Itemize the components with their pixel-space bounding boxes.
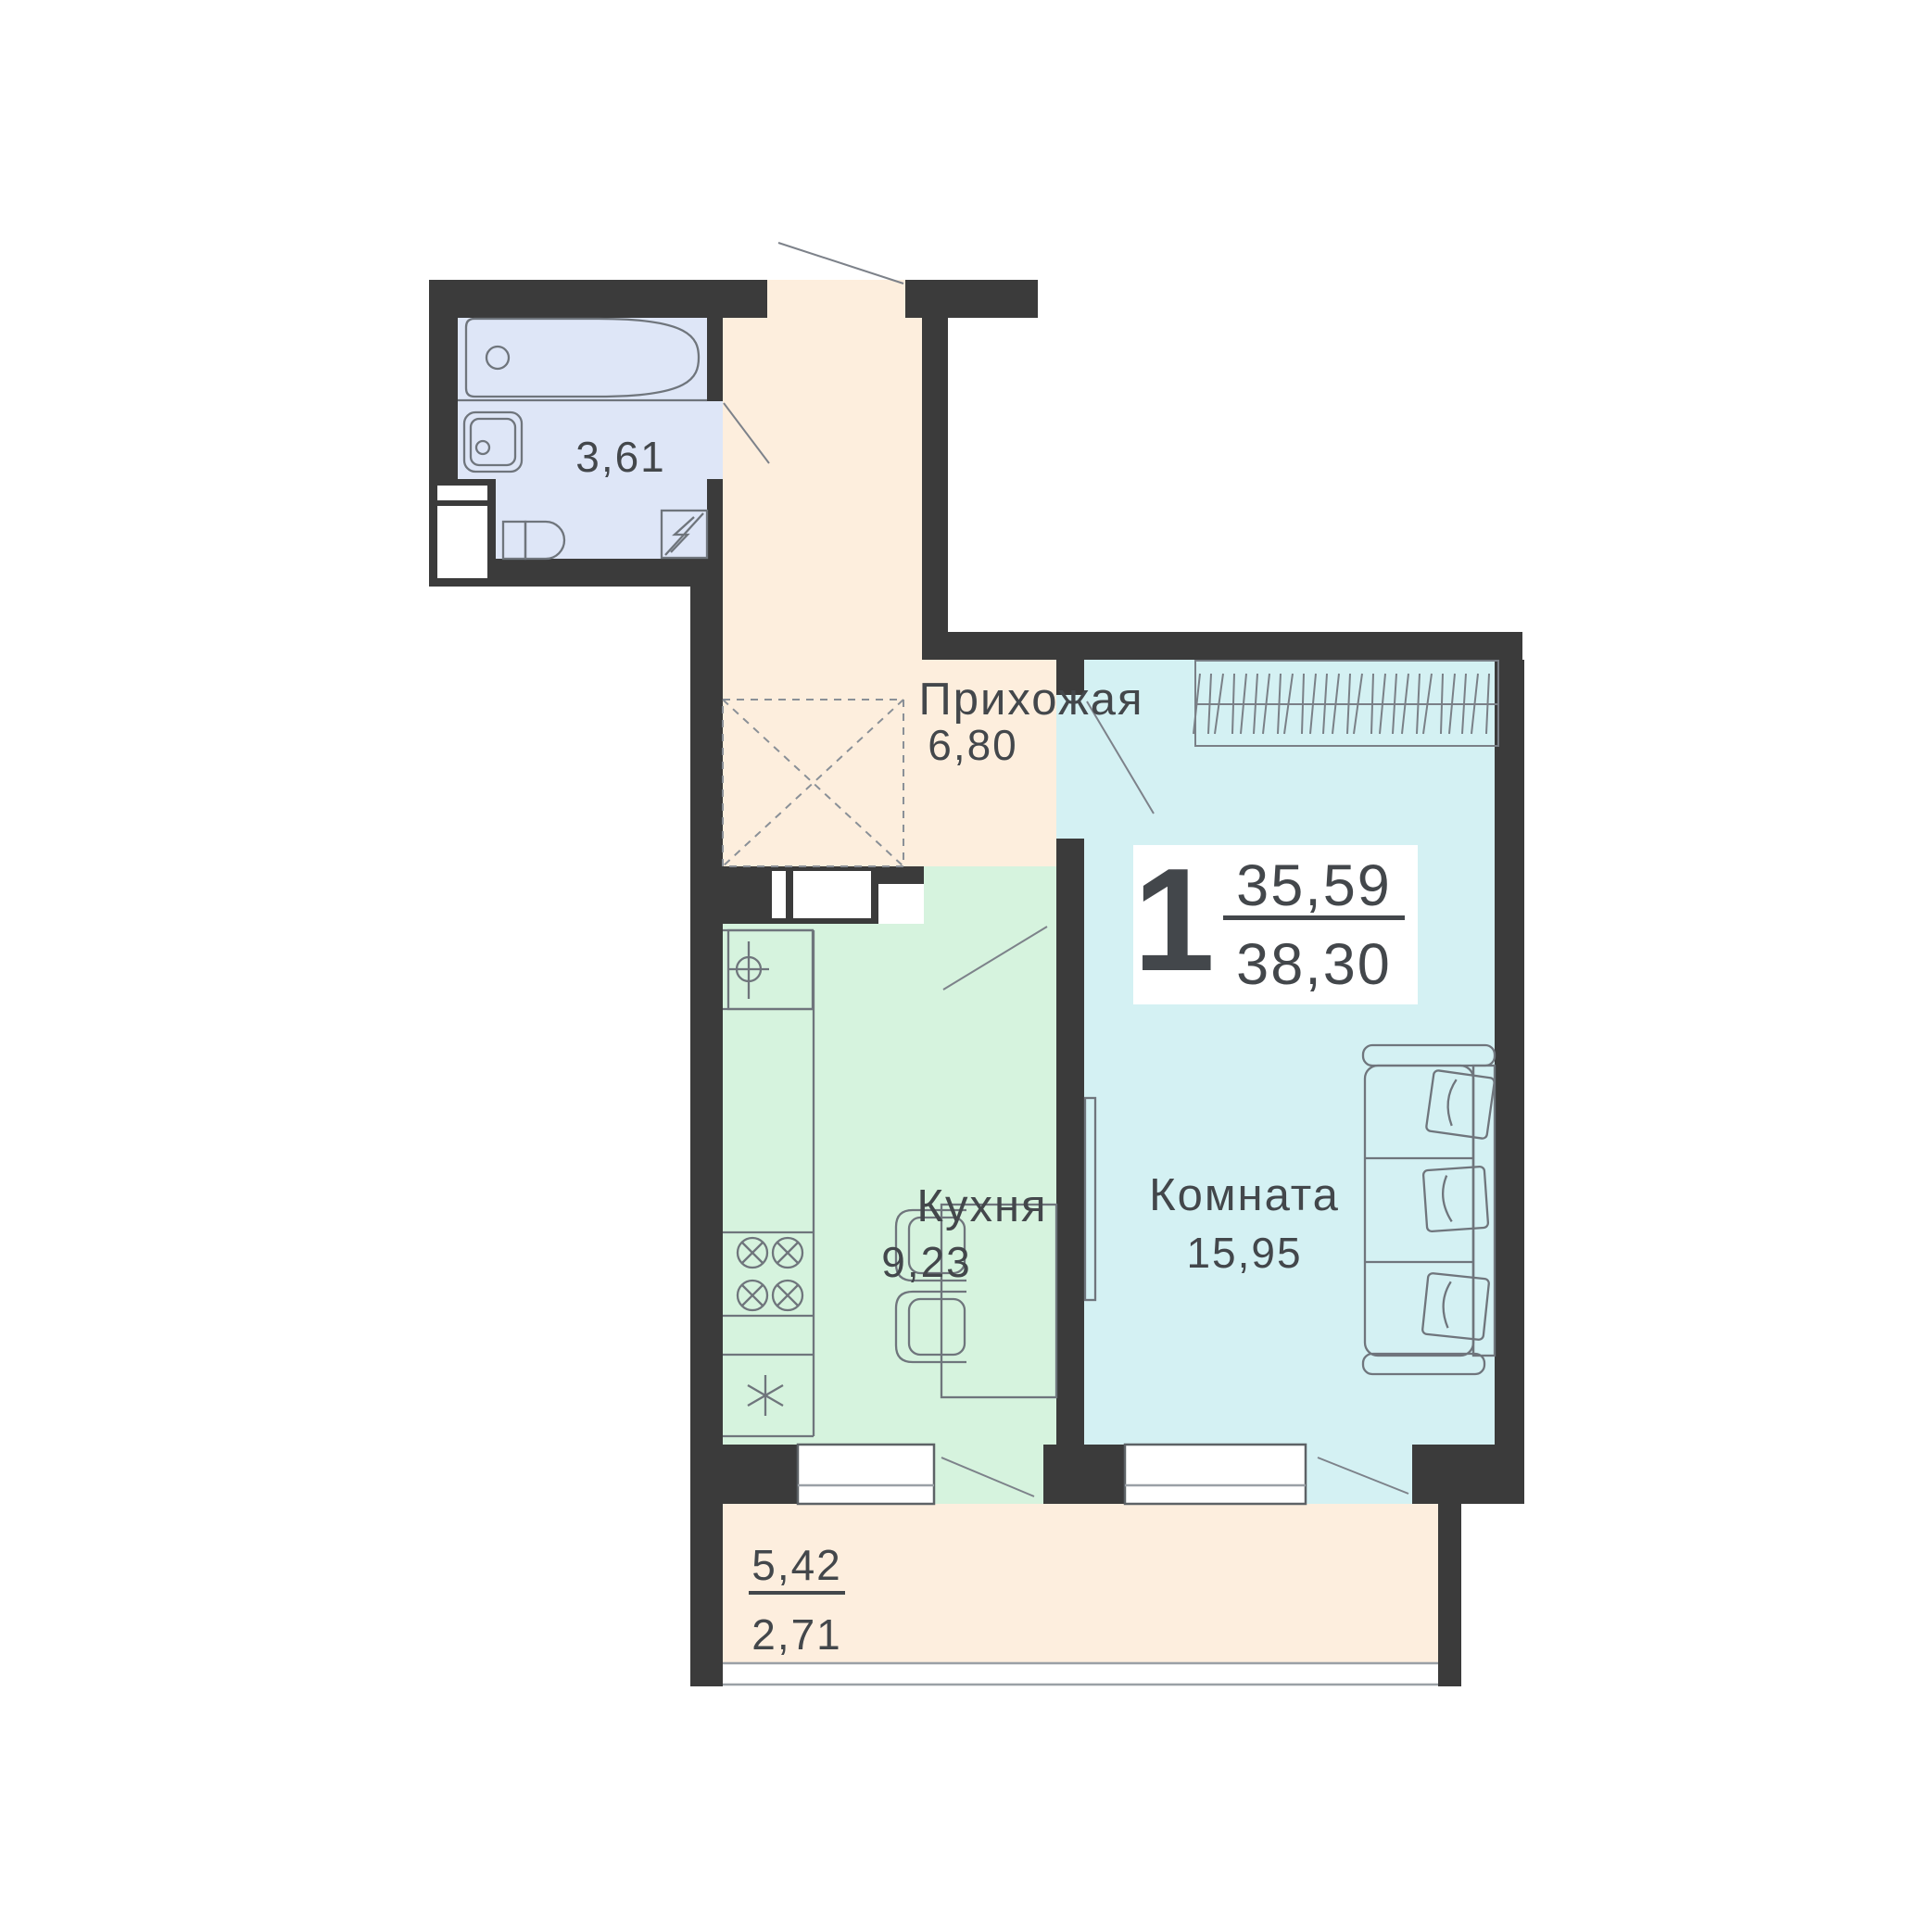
living-room-floor [1056,660,1495,1504]
wall-bathroom-right-lower [707,479,723,559]
living-room-window [1125,1445,1306,1504]
label-living-room-area: 15,95 [1186,1229,1302,1277]
entrance-door-swing [778,243,903,284]
kitchen-window [798,1445,934,1504]
wall-balcony-left [690,1504,723,1686]
badge-living-area: 35,59 [1236,853,1392,918]
wall-mid-horizontal [922,632,1522,660]
badge-divider [1223,915,1405,920]
label-hallway-name: Прихожая [918,675,1143,725]
wall-bottom-a [690,1445,798,1504]
wall-left-outer [690,587,723,1445]
label-balcony-area-counted: 2,71 [751,1610,842,1659]
badge-rooms-count: 1 [1133,839,1217,1002]
label-kitchen-area: 9,23 [881,1238,972,1286]
badge-total-area: 38,30 [1236,932,1392,997]
wall-top-right [905,280,1038,318]
wall-bottom-c [1412,1445,1524,1504]
apartment-badge: 1 35,59 38,30 [1133,839,1418,1004]
shaft-box-bathroom-small [437,486,487,500]
balcony-glazing [723,1663,1438,1685]
floor-plan-svg: 1 35,59 38,30 3,61 Прихожая 6,80 Кухня 9… [0,0,1932,1931]
wall-balcony-right [1438,1504,1461,1686]
hallway-floor [723,280,1056,866]
wall-bathroom-right-upper [707,280,723,401]
shaft-box-bathroom-large [437,506,487,578]
floor-plan-canvas: 1 35,59 38,30 3,61 Прихожая 6,80 Кухня 9… [0,0,1932,1931]
label-hallway-area: 6,80 [928,721,1018,769]
wall-bottom-b [1043,1445,1125,1504]
shaft-box-kitchen-narrow [772,871,786,918]
label-kitchen-name: Кухня [916,1181,1047,1231]
wall-room-left-lower [1056,839,1084,1445]
wall-kitchen-top-strip [878,866,924,884]
balcony-area-underline [749,1591,845,1595]
wall-room-right [1495,660,1524,1504]
wall-corridor-right [922,318,948,632]
label-balcony-area-full: 5,42 [751,1541,842,1589]
label-bathroom-area: 3,61 [575,433,666,481]
shaft-box-kitchen-wide [793,871,871,918]
label-living-room-name: Комната [1149,1170,1340,1220]
